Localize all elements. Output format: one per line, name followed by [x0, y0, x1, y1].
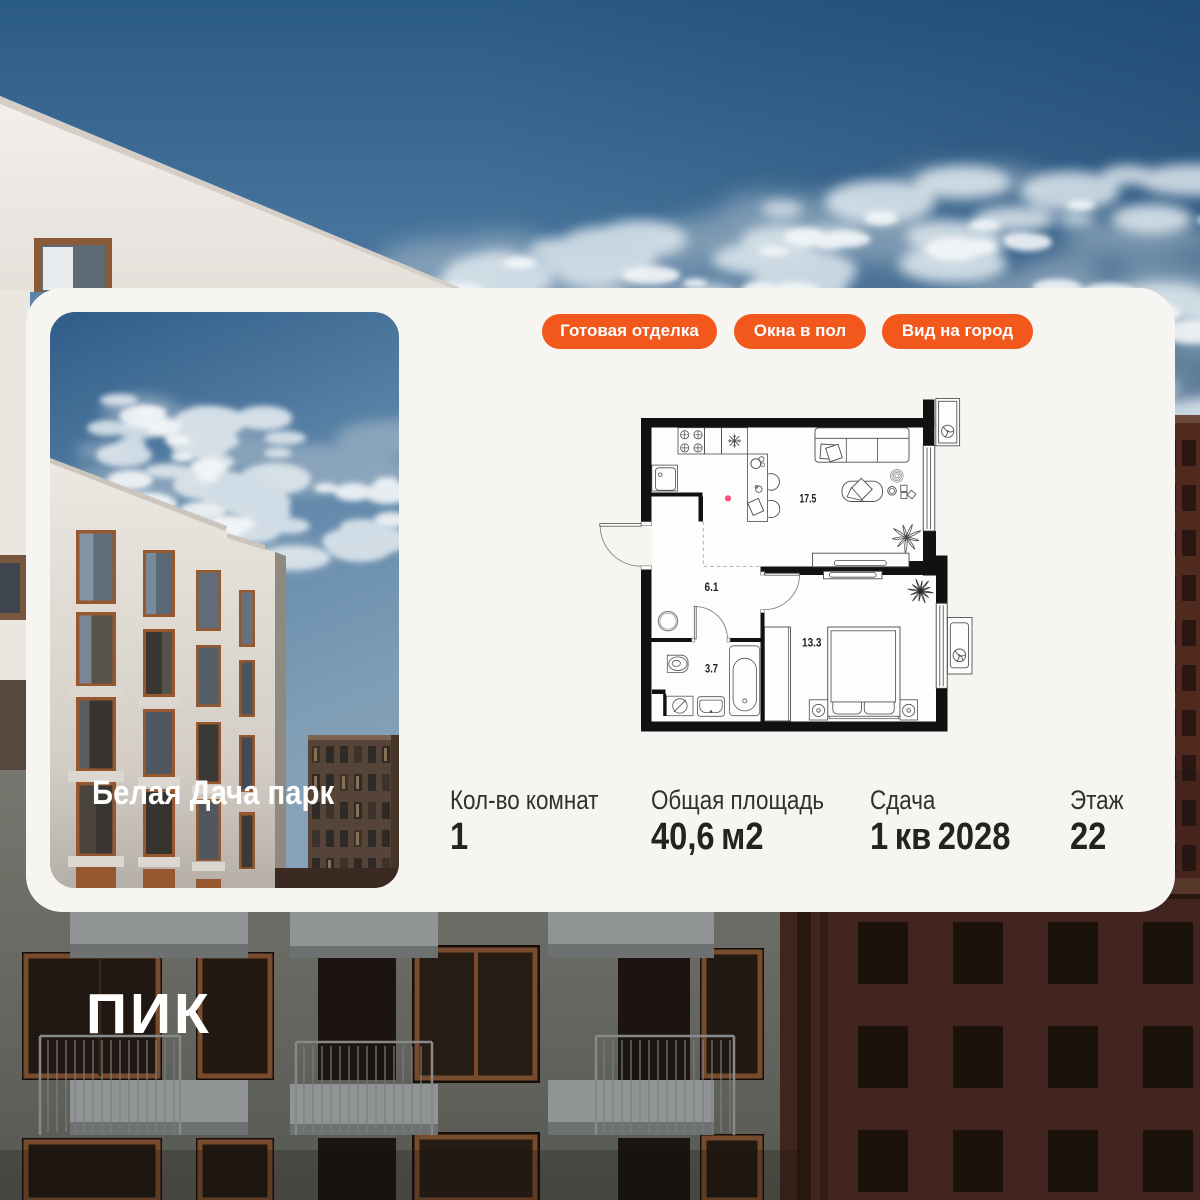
svg-text:3.7: 3.7: [705, 663, 718, 675]
svg-text:13.3: 13.3: [802, 637, 822, 649]
svg-text:17.5: 17.5: [800, 493, 817, 505]
svg-text:6.1: 6.1: [705, 582, 720, 594]
